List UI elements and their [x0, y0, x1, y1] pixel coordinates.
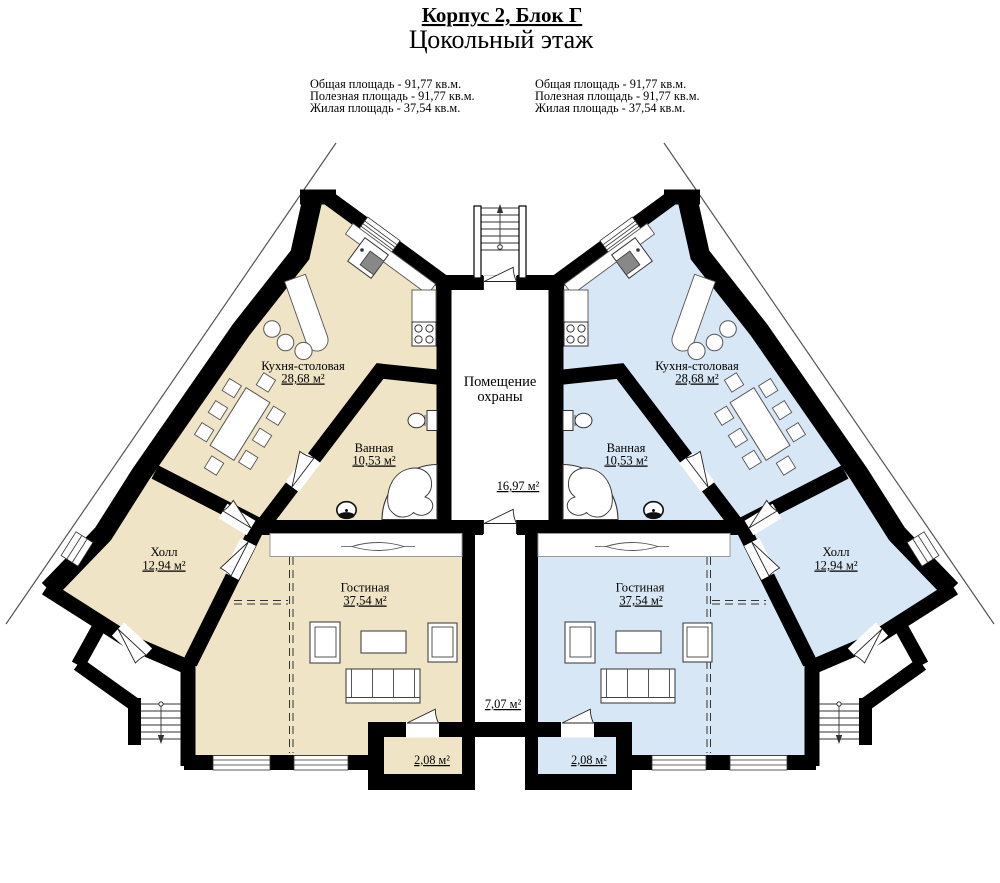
- svg-text:Жилая площадь - 37,54 кв.м.: Жилая площадь - 37,54 кв.м.: [310, 101, 460, 115]
- svg-text:16,97 м²: 16,97 м²: [497, 479, 540, 493]
- svg-text:Холл: Холл: [822, 545, 849, 559]
- svg-text:Помещение: Помещение: [464, 374, 537, 390]
- svg-text:10,53 м²: 10,53 м²: [604, 454, 647, 468]
- svg-text:Корпус 2, Блок Г: Корпус 2, Блок Г: [422, 3, 582, 27]
- svg-text:Гостиная: Гостиная: [616, 581, 665, 595]
- svg-text:12,94 м²: 12,94 м²: [142, 559, 185, 573]
- svg-text:28,68 м²: 28,68 м²: [675, 372, 718, 386]
- svg-text:Цокольный этаж: Цокольный этаж: [409, 25, 594, 54]
- svg-text:охраны: охраны: [477, 389, 523, 405]
- svg-text:2,08 м²: 2,08 м²: [414, 753, 450, 767]
- svg-text:Гостиная: Гостиная: [341, 581, 390, 595]
- svg-text:Холл: Холл: [150, 545, 177, 559]
- svg-text:12,94 м²: 12,94 м²: [814, 559, 857, 573]
- svg-text:2,08 м²: 2,08 м²: [571, 753, 607, 767]
- svg-text:37,54 м²: 37,54 м²: [343, 594, 386, 608]
- svg-text:7,07 м²: 7,07 м²: [485, 697, 522, 711]
- svg-text:28,68 м²: 28,68 м²: [281, 372, 324, 386]
- svg-text:37,54 м²: 37,54 м²: [619, 594, 662, 608]
- svg-text:Жилая площадь - 37,54 кв.м.: Жилая площадь - 37,54 кв.м.: [535, 101, 685, 115]
- svg-text:10,53 м²: 10,53 м²: [352, 454, 395, 468]
